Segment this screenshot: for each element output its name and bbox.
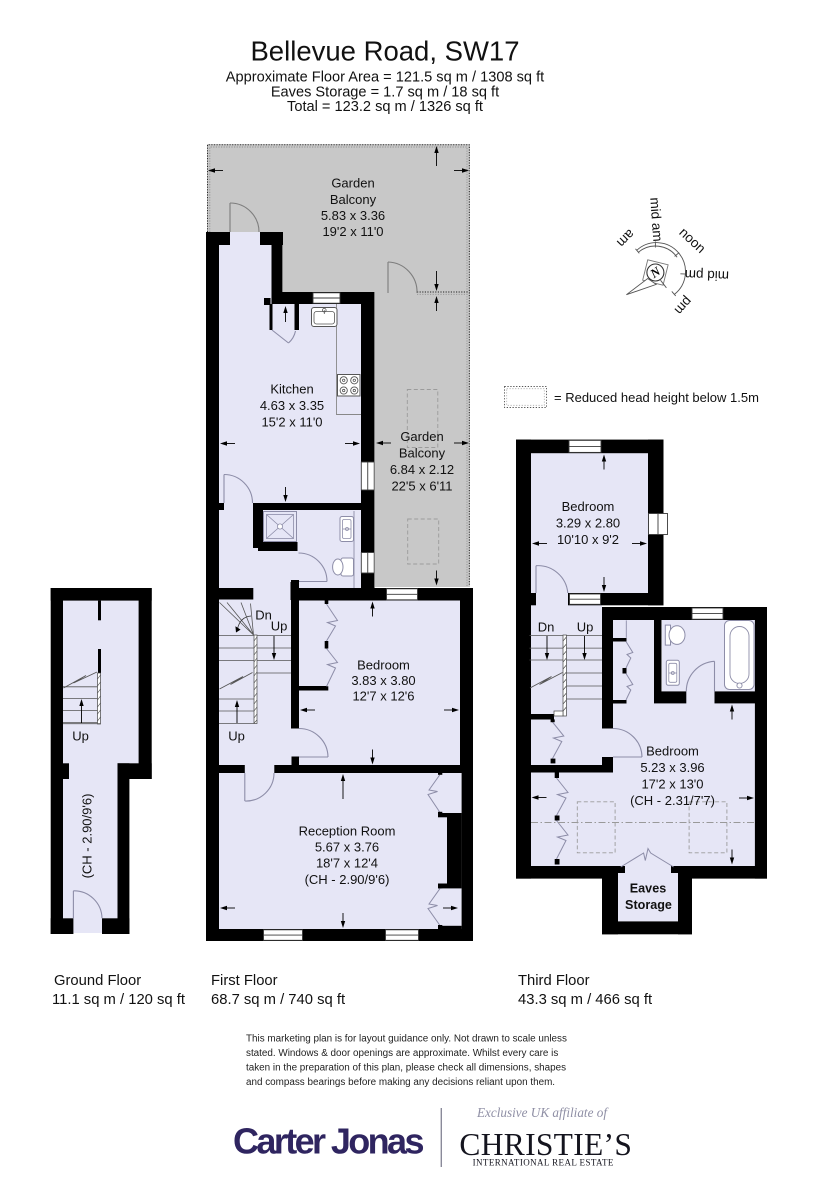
svg-text:Eaves Storage = 1.7 sq m / 18: Eaves Storage = 1.7 sq m / 18 sq ft	[271, 84, 499, 100]
svg-text:6.84 x 2.12: 6.84 x 2.12	[390, 462, 454, 477]
svg-text:5.23 x 3.96: 5.23 x 3.96	[640, 760, 704, 775]
svg-text:Bedroom: Bedroom	[646, 744, 699, 759]
svg-text:Reception Room: Reception Room	[299, 824, 396, 839]
svg-text:Dn: Dn	[255, 608, 272, 623]
svg-text:Balcony: Balcony	[399, 446, 446, 461]
svg-text:and compass bearings before ma: and compass bearings before making any d…	[246, 1077, 555, 1088]
svg-text:12'7 x 12'6: 12'7 x 12'6	[352, 689, 414, 704]
svg-text:Third Floor: Third Floor	[518, 973, 590, 989]
svg-text:Total = 123.2 sq m / 1326 sq f: Total = 123.2 sq m / 1326 sq ft	[287, 99, 483, 115]
svg-text:3.83 x 3.80: 3.83 x 3.80	[351, 673, 415, 688]
svg-text:Balcony: Balcony	[330, 192, 377, 207]
svg-text:Bedroom: Bedroom	[562, 499, 615, 514]
svg-text:stated. Windows & door opening: stated. Windows & door openings are appr…	[246, 1048, 558, 1059]
svg-text:Dn: Dn	[538, 620, 555, 635]
svg-text:Kitchen: Kitchen	[270, 382, 313, 397]
svg-text:First Floor: First Floor	[211, 973, 278, 989]
svg-text:Storage: Storage	[625, 898, 672, 912]
svg-text:taken in the preparation of th: taken in the preparation of this plan, p…	[246, 1063, 566, 1074]
svg-text:5.67 x 3.76: 5.67 x 3.76	[315, 840, 379, 855]
svg-text:Up: Up	[577, 620, 594, 635]
svg-text:3.29 x 2.80: 3.29 x 2.80	[556, 516, 620, 531]
svg-text:Up: Up	[271, 619, 288, 634]
svg-text:INTERNATIONAL REAL ESTATE: INTERNATIONAL REAL ESTATE	[473, 1158, 614, 1168]
svg-text:11.1 sq m / 120 sq ft: 11.1 sq m / 120 sq ft	[52, 992, 185, 1008]
svg-text:This marketing plan is for lay: This marketing plan is for layout guidan…	[246, 1034, 567, 1045]
svg-text:4.63 x 3.35: 4.63 x 3.35	[260, 398, 324, 413]
svg-text:5.83 x 3.36: 5.83 x 3.36	[321, 208, 385, 223]
svg-text:Carter Jonas: Carter Jonas	[233, 1120, 423, 1161]
svg-text:= Reduced head height below 1.: = Reduced head height below 1.5m	[554, 390, 759, 405]
svg-text:68.7 sq m / 740 sq ft: 68.7 sq m / 740 sq ft	[211, 992, 345, 1008]
svg-text:Bedroom: Bedroom	[357, 658, 410, 673]
svg-text:(CH - 2.90/9'6): (CH - 2.90/9'6)	[80, 794, 95, 879]
svg-text:mid pm: mid pm	[684, 267, 729, 284]
svg-text:43.3 sq m / 466 sq ft: 43.3 sq m / 466 sq ft	[518, 992, 652, 1008]
svg-text:17'2 x 13'0: 17'2 x 13'0	[641, 777, 703, 792]
svg-text:Eaves: Eaves	[630, 882, 666, 896]
svg-text:Ground Floor: Ground Floor	[54, 973, 141, 989]
svg-text:19'2 x 11'0: 19'2 x 11'0	[322, 224, 383, 239]
svg-text:Up: Up	[228, 729, 245, 744]
svg-text:18'7 x 12'4: 18'7 x 12'4	[316, 856, 378, 871]
svg-text:(CH - 2.31/7'7): (CH - 2.31/7'7)	[630, 793, 715, 808]
svg-text:Approximate Floor Area = 121.5: Approximate Floor Area = 121.5 sq m / 13…	[226, 70, 544, 86]
svg-text:Exclusive UK affiliate of: Exclusive UK affiliate of	[476, 1105, 609, 1120]
svg-text:22'5 x 6'11: 22'5 x 6'11	[391, 479, 452, 494]
svg-text:10'10 x 9'2: 10'10 x 9'2	[557, 532, 619, 547]
svg-text:Up: Up	[72, 729, 89, 744]
svg-text:(CH - 2.90/9'6): (CH - 2.90/9'6)	[305, 872, 390, 887]
svg-text:Garden: Garden	[331, 176, 374, 191]
svg-text:15'2 x 11'0: 15'2 x 11'0	[261, 415, 322, 430]
svg-text:Bellevue Road, SW17: Bellevue Road, SW17	[250, 36, 519, 67]
svg-text:Garden: Garden	[400, 429, 443, 444]
svg-text:mid am: mid am	[647, 197, 665, 242]
